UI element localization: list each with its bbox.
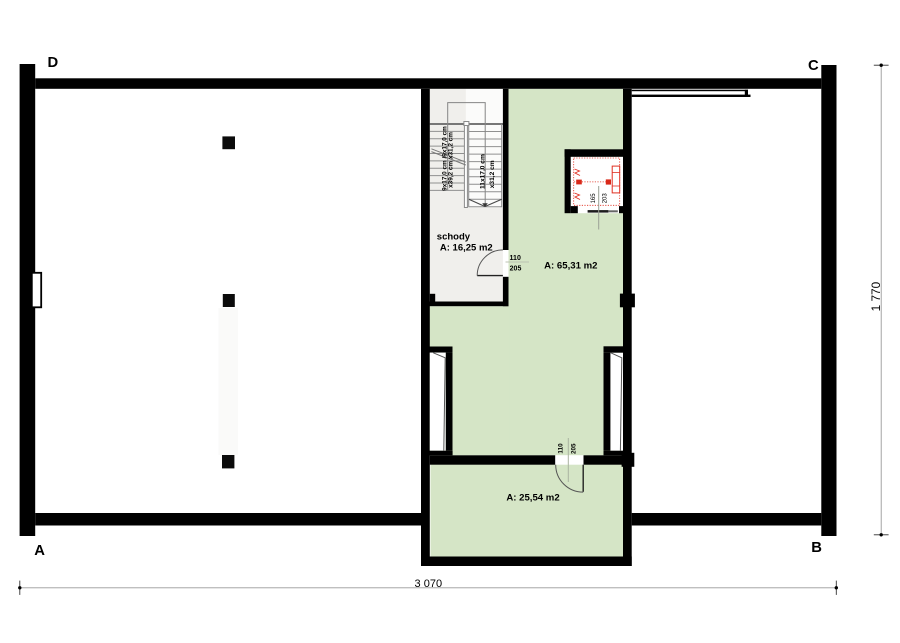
svg-text:schody: schody — [437, 231, 471, 242]
svg-text:205: 205 — [510, 265, 522, 272]
svg-text:D: D — [48, 55, 59, 71]
svg-text:205: 205 — [571, 443, 578, 454]
svg-text:B: B — [811, 540, 822, 556]
svg-text:A: A — [34, 543, 45, 559]
svg-text:3 070: 3 070 — [415, 578, 443, 590]
svg-text:x31,2 cm: x31,2 cm — [489, 160, 496, 188]
svg-text:110: 110 — [510, 255, 521, 262]
svg-text:A: 65,31 m2: A: 65,31 m2 — [544, 261, 597, 272]
svg-text:x39,2 cm x31,2 cm: x39,2 cm x31,2 cm — [447, 132, 454, 188]
svg-text:1 770: 1 770 — [869, 281, 883, 311]
svg-text:A: 25,54 m2: A: 25,54 m2 — [506, 492, 559, 503]
svg-text:11x17,0 cm: 11x17,0 cm — [479, 154, 486, 189]
svg-text:C: C — [808, 58, 819, 74]
svg-text:A: 16,25 m2: A: 16,25 m2 — [440, 242, 493, 253]
svg-text:203: 203 — [602, 193, 608, 204]
svg-text:165: 165 — [591, 193, 597, 204]
svg-text:110: 110 — [557, 443, 564, 454]
